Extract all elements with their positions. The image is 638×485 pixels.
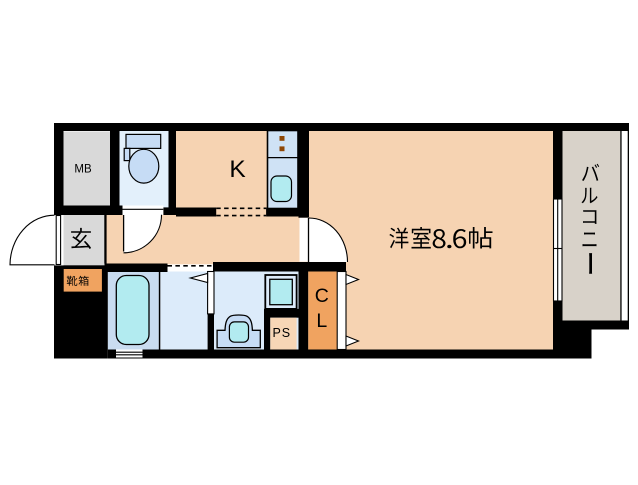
svg-text:MB: MB <box>74 163 92 175</box>
svg-text:PS: PS <box>272 326 291 340</box>
svg-text:L: L <box>316 310 327 332</box>
svg-text:K: K <box>229 156 246 183</box>
svg-text:C: C <box>315 285 329 307</box>
